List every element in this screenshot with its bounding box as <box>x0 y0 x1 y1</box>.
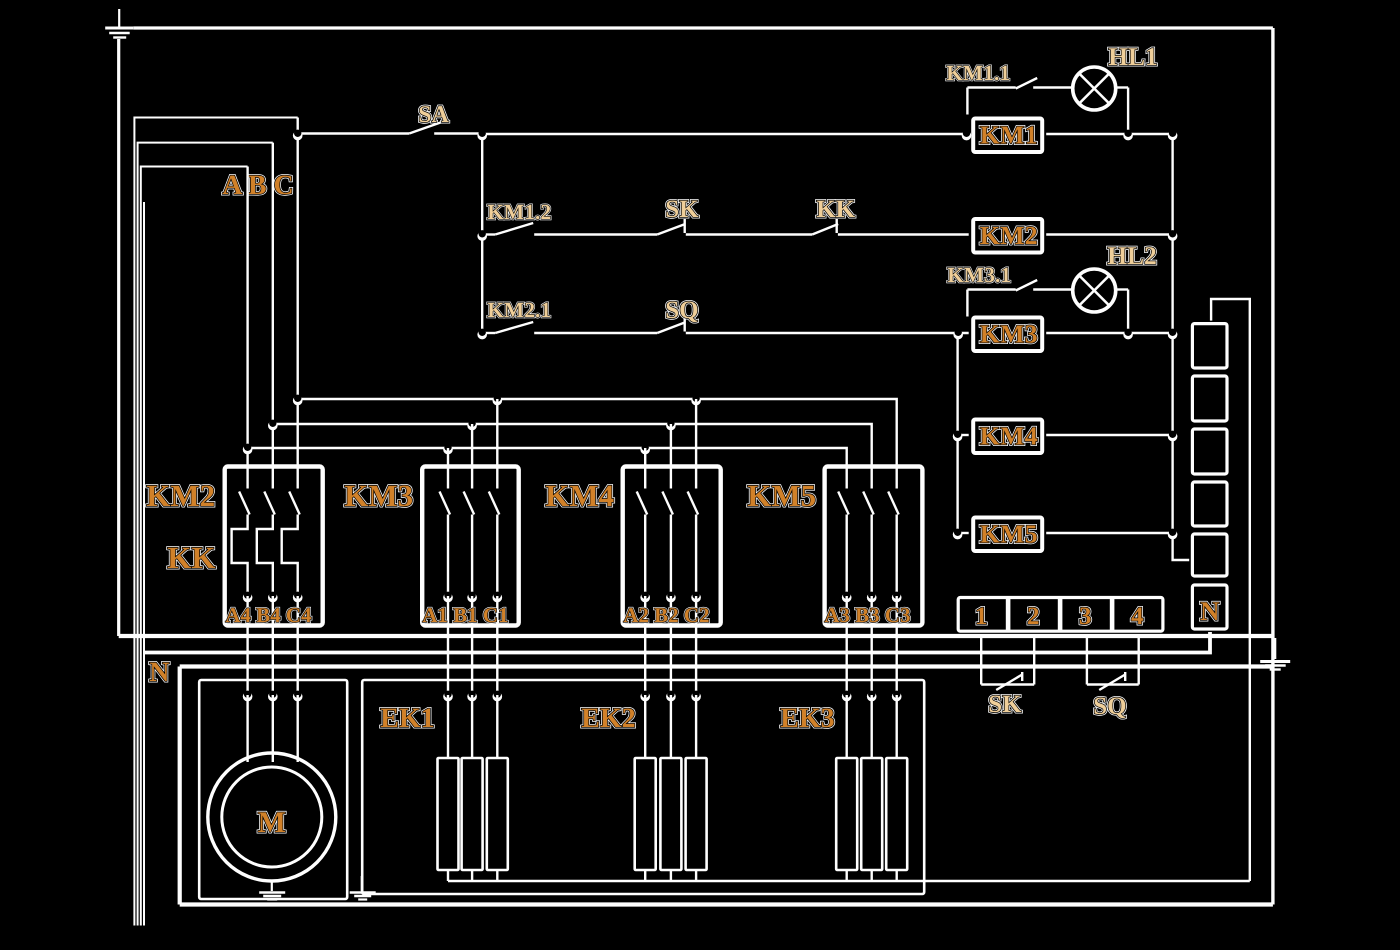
svg-text:2: 2 <box>1027 603 1040 630</box>
svg-text:SA: SA <box>418 102 449 128</box>
svg-text:HL2: HL2 <box>1107 241 1157 270</box>
svg-text:KM3: KM3 <box>980 320 1038 349</box>
svg-text:N: N <box>1200 596 1220 626</box>
svg-text:A3 B3 C3: A3 B3 C3 <box>824 603 910 627</box>
svg-text:KM2: KM2 <box>146 478 215 513</box>
svg-text:EK2: EK2 <box>581 703 635 734</box>
svg-text:KM3: KM3 <box>344 478 413 513</box>
svg-text:KM2: KM2 <box>980 221 1038 250</box>
svg-text:KM4: KM4 <box>545 478 614 513</box>
svg-text:SK: SK <box>988 691 1022 718</box>
svg-text:HL1: HL1 <box>1108 42 1158 71</box>
svg-text:SQ: SQ <box>1093 693 1126 720</box>
svg-text:KM2.1: KM2.1 <box>487 298 551 322</box>
svg-text:EK3: EK3 <box>780 703 834 734</box>
svg-text:KK: KK <box>167 540 215 575</box>
svg-text:KM4: KM4 <box>980 422 1038 451</box>
svg-text:1: 1 <box>975 603 988 630</box>
svg-text:A2 B2 C2: A2 B2 C2 <box>623 603 709 627</box>
svg-text:3: 3 <box>1079 603 1092 630</box>
svg-text:A B C: A B C <box>222 170 294 201</box>
svg-text:A1 B1 C1: A1 B1 C1 <box>422 603 508 627</box>
svg-text:KM5: KM5 <box>747 478 816 513</box>
svg-text:KM5: KM5 <box>980 520 1038 549</box>
svg-text:N: N <box>149 657 169 688</box>
svg-text:SK: SK <box>665 196 699 223</box>
svg-text:A4 B4 C4: A4 B4 C4 <box>225 603 312 627</box>
svg-text:KM1.1: KM1.1 <box>946 61 1010 85</box>
svg-text:4: 4 <box>1131 603 1144 630</box>
svg-text:EK1: EK1 <box>380 703 434 734</box>
svg-text:KM1: KM1 <box>980 121 1038 150</box>
svg-text:KM3.1: KM3.1 <box>947 263 1011 287</box>
svg-text:SQ: SQ <box>665 297 698 324</box>
svg-text:KM1.2: KM1.2 <box>487 200 551 224</box>
svg-text:KK: KK <box>816 196 855 223</box>
svg-text:M: M <box>258 806 286 839</box>
